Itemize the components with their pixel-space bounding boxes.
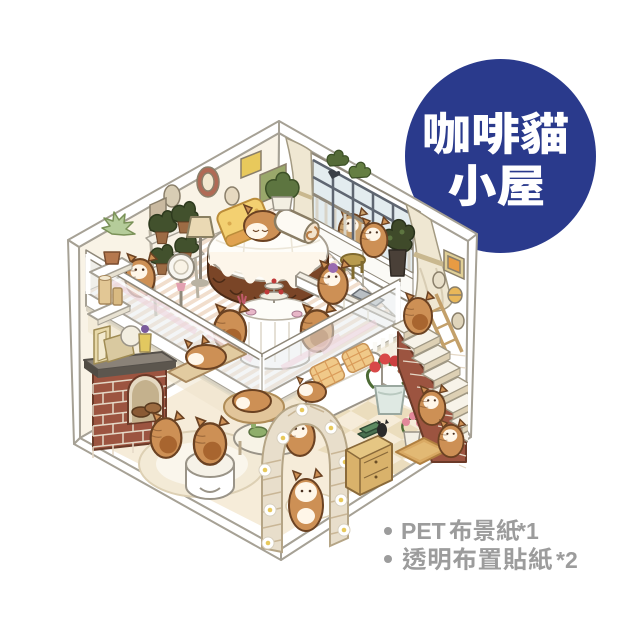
- svg-text:PET: PET: [401, 518, 446, 544]
- svg-text:*2: *2: [556, 547, 578, 573]
- svg-text:*1: *1: [517, 518, 539, 544]
